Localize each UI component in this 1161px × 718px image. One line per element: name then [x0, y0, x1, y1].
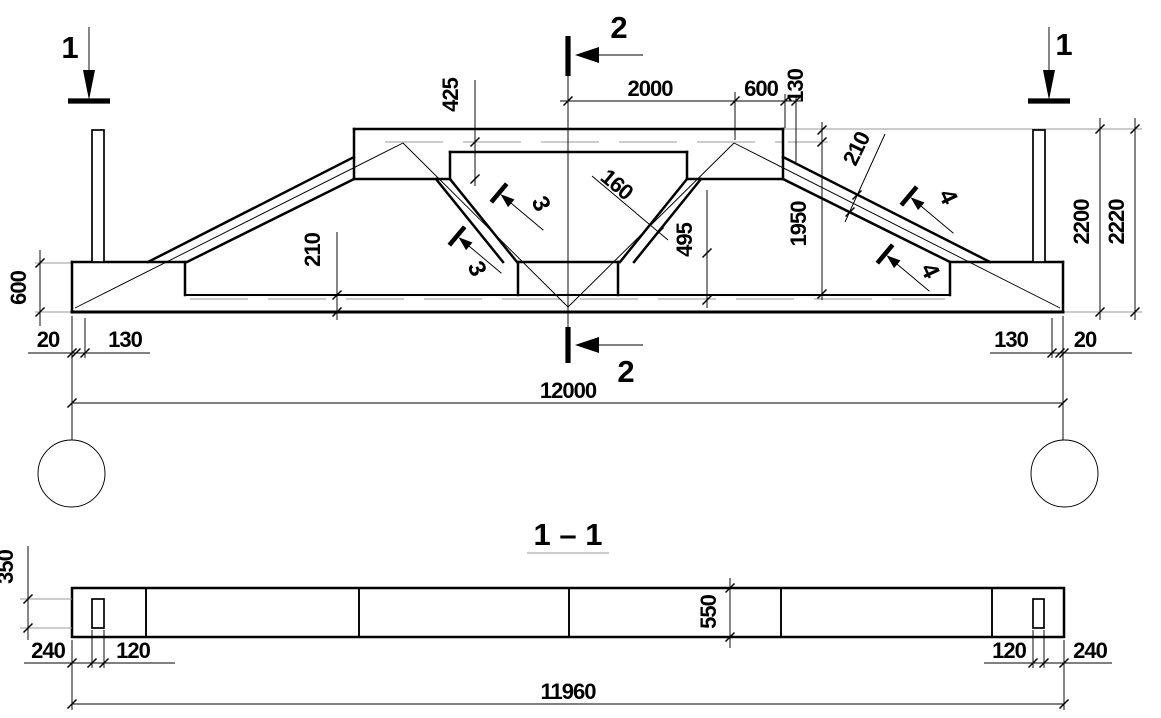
dim-130-left: 130: [108, 327, 142, 352]
section-dimensions: 350 550 240 120 120 240: [0, 546, 1112, 710]
dim-130-right: 130: [994, 327, 1028, 352]
dim-210-chord: 210: [300, 232, 325, 266]
grid-bubble-left: [38, 440, 105, 507]
dim-425: 425: [438, 77, 463, 111]
flag-label-4: 4: [933, 185, 963, 209]
dim-240-left: 240: [31, 638, 65, 663]
dim-120-right: 120: [992, 638, 1026, 663]
right-post: [1033, 130, 1045, 262]
dim-2220: 2220: [1104, 199, 1129, 245]
dim-600-left: 600: [6, 270, 31, 304]
right-slope-outer: [783, 157, 990, 262]
section-label-2: 2: [617, 354, 634, 389]
drawing-canvas: 1 1 2 2 3: [0, 0, 1161, 718]
dim-240-right: 240: [1073, 638, 1107, 663]
section-marker-2-top: 2: [568, 10, 643, 76]
dim-12000: 12000: [540, 378, 597, 403]
flag-label-4: 4: [915, 259, 945, 283]
gray-reference-lines: [35, 129, 1142, 312]
left-post-section: [92, 599, 104, 628]
elevation-view: 1 1 2 2 3: [6, 10, 1142, 507]
truss-drawing: 1 1 2 2 3: [0, 0, 1161, 718]
section-label-1: 1: [61, 30, 78, 65]
dim-550: 550: [696, 594, 721, 628]
flag-label-3: 3: [526, 192, 556, 216]
dim-350: 350: [0, 549, 18, 583]
grid-bubble-right: [1031, 440, 1098, 507]
section-marker-1-right: 1: [1028, 27, 1073, 101]
dim-210-slope: 210: [838, 127, 876, 169]
section-label-2: 2: [610, 10, 627, 45]
dim-11960: 11960: [541, 679, 597, 704]
section-beam: [72, 588, 1064, 637]
dim-2200: 2200: [1069, 199, 1094, 245]
dim-20-right: 20: [1074, 327, 1097, 352]
left-slope-inner: [187, 179, 354, 262]
elevation-dimensions: 2000 600 130 425 160 495 1950: [6, 68, 1140, 440]
left-strut: [436, 179, 503, 262]
member-axis-lines: [75, 143, 1060, 308]
dim-600-top: 600: [744, 76, 778, 101]
section-view-title: 1 – 1: [534, 517, 603, 552]
right-post-section: [1033, 599, 1044, 628]
dim-2000: 2000: [628, 76, 674, 101]
section-label-1: 1: [1055, 27, 1072, 62]
dim-20-left: 20: [37, 327, 60, 352]
truss-outline: [72, 129, 1063, 312]
dim-160: 160: [596, 164, 638, 205]
left-post: [92, 130, 104, 262]
section-marker-1-left: 1: [61, 27, 110, 101]
section-1-1-view: 1 – 1 350 550: [0, 517, 1112, 710]
dim-495: 495: [672, 222, 697, 256]
dim-120-left: 120: [116, 638, 150, 663]
position-flag-3a: [491, 184, 551, 240]
flag-label-3: 3: [462, 257, 492, 281]
dim-1950: 1950: [786, 201, 811, 247]
dim-130-top: 130: [783, 68, 808, 102]
